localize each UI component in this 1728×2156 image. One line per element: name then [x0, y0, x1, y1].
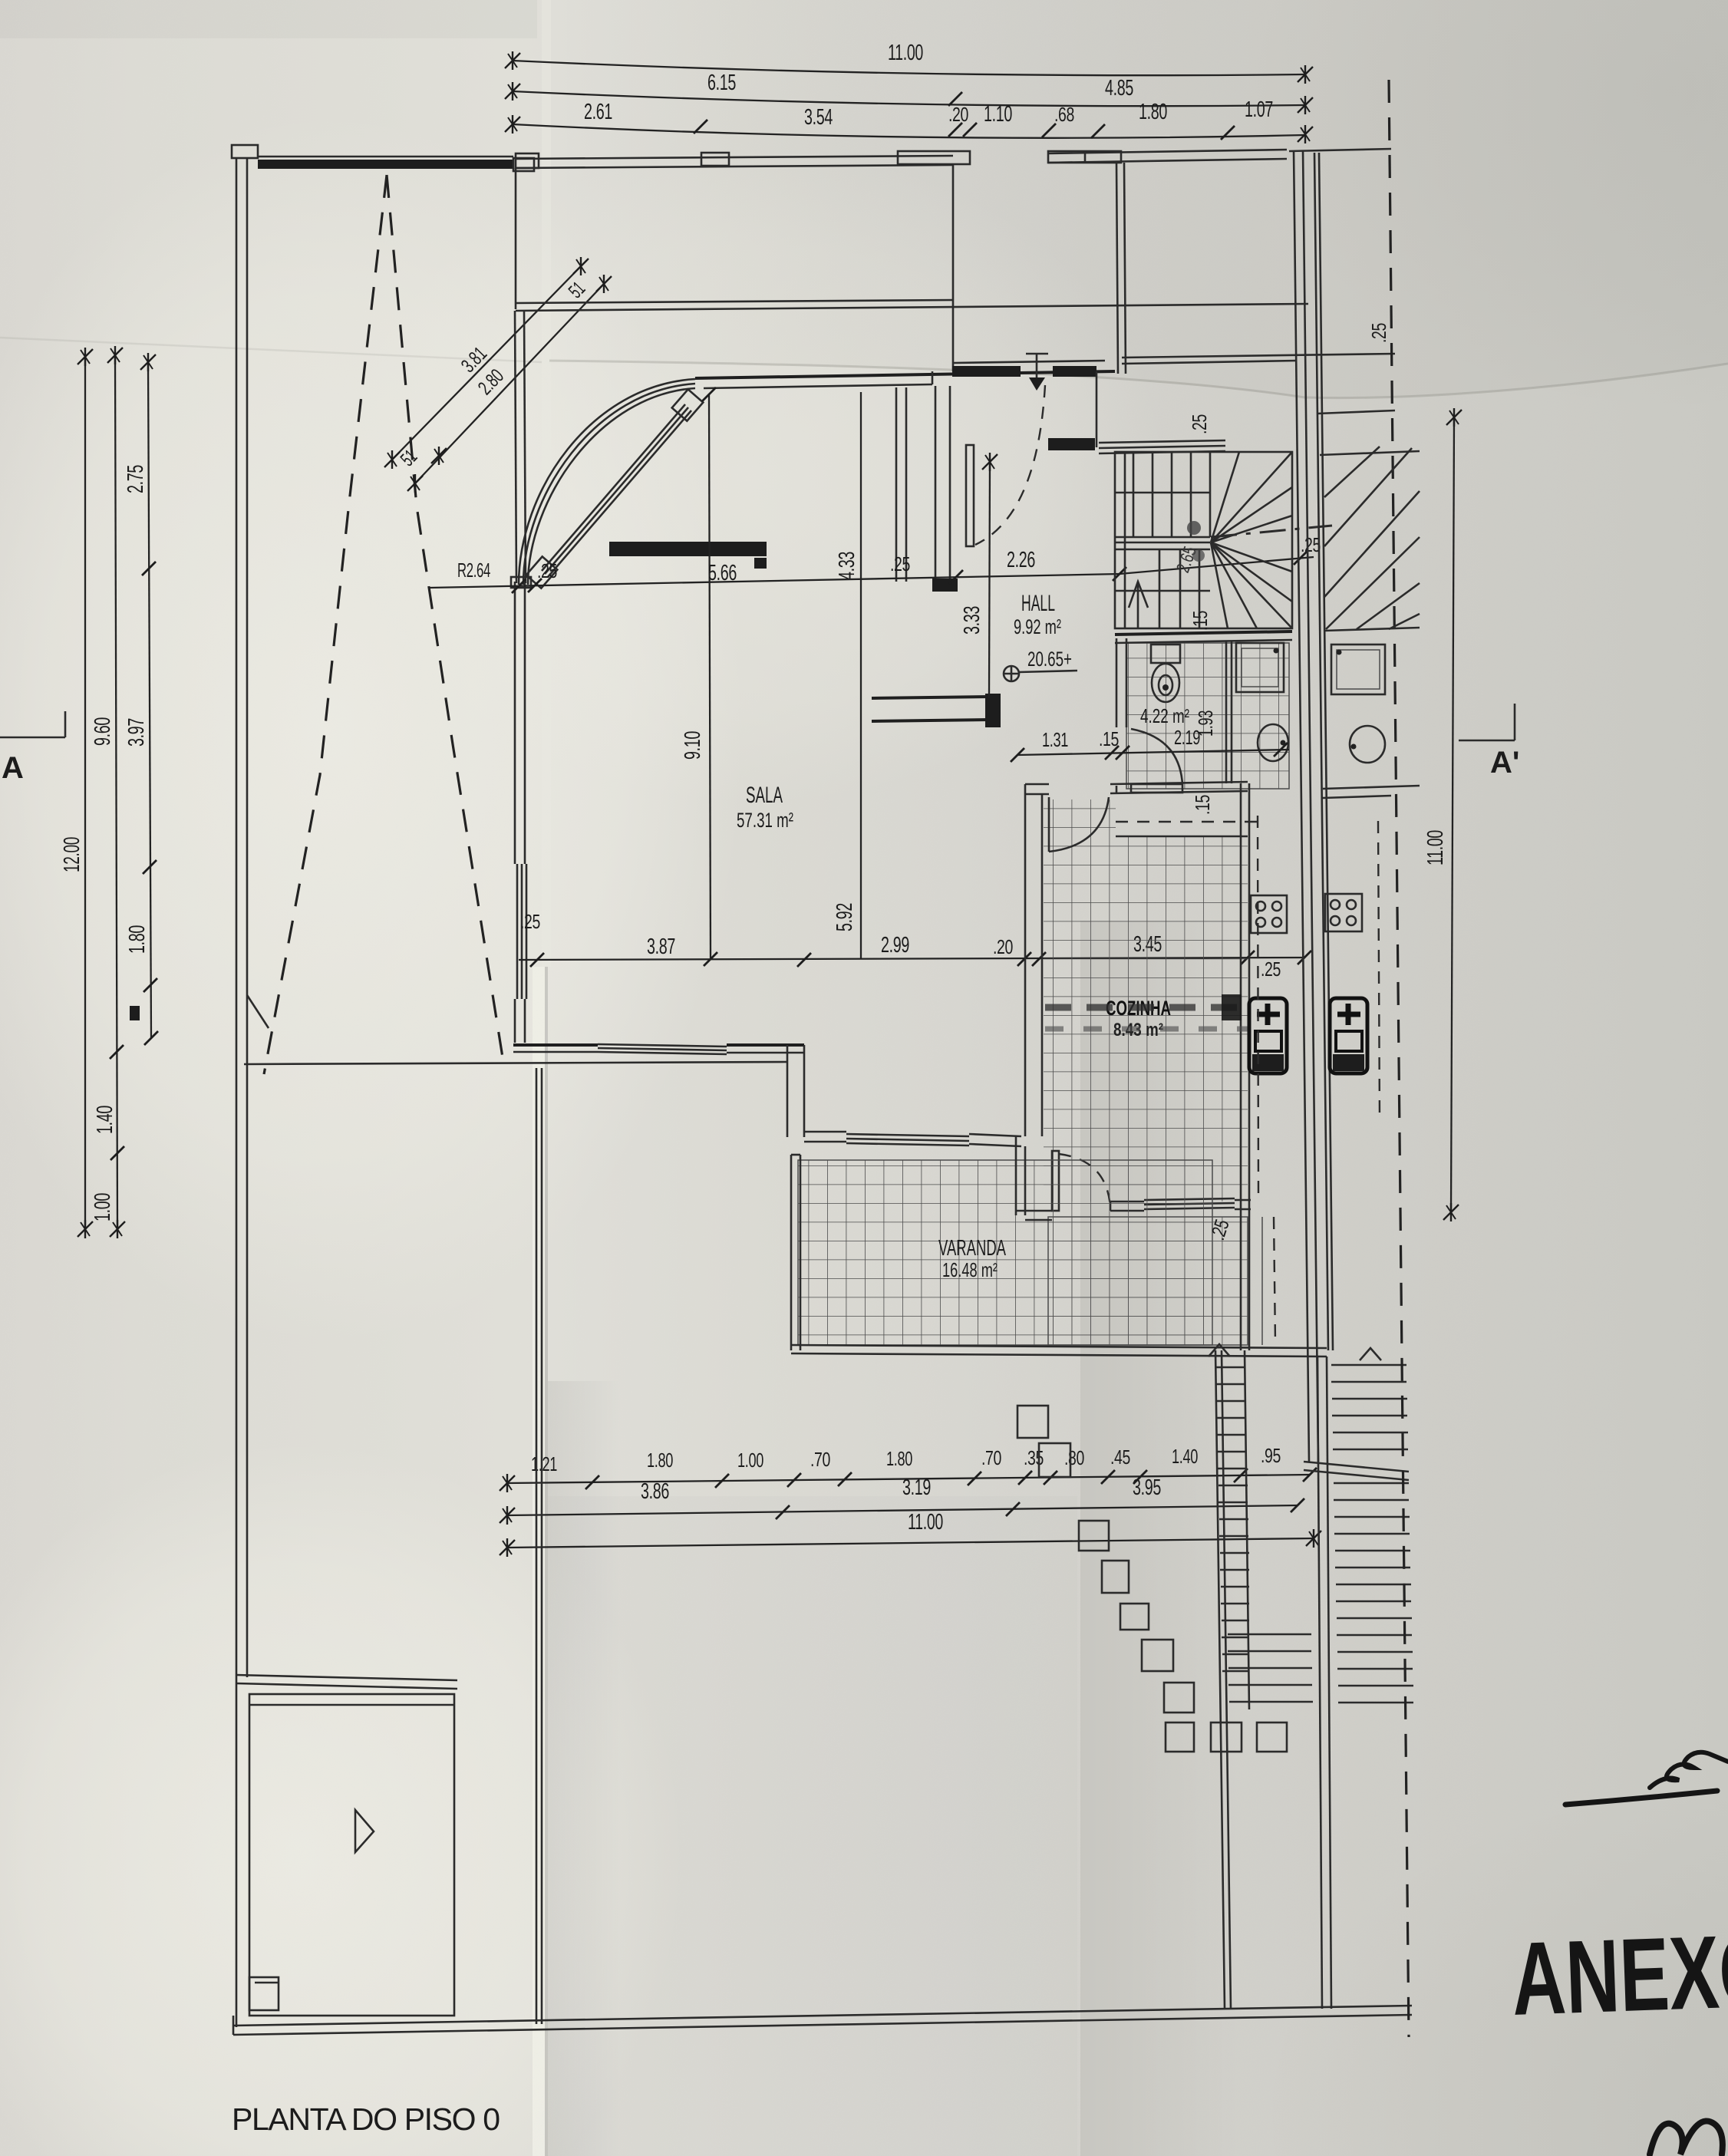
- svg-text:6.15: 6.15: [707, 71, 736, 95]
- svg-text:.15: .15: [1191, 795, 1214, 815]
- svg-text:1.00: 1.00: [737, 1449, 763, 1472]
- svg-text:.25: .25: [1188, 414, 1211, 434]
- svg-text:2.26: 2.26: [1007, 548, 1035, 572]
- svg-text:SALA: SALA: [746, 783, 783, 808]
- svg-text:12.00: 12.00: [60, 837, 84, 872]
- svg-text:.70: .70: [981, 1446, 1001, 1469]
- svg-text:16.48 m²: 16.48 m²: [942, 1258, 998, 1281]
- svg-text:9.60: 9.60: [91, 717, 115, 746]
- svg-text:9.10: 9.10: [681, 731, 705, 760]
- svg-text:.45: .45: [1110, 1446, 1130, 1469]
- svg-text:5.92: 5.92: [833, 903, 857, 931]
- svg-text:3.33: 3.33: [960, 606, 984, 635]
- svg-text:ANEXO: ANEXO: [1510, 1912, 1728, 2036]
- svg-text:1.80: 1.80: [1139, 100, 1167, 124]
- svg-text:1.80: 1.80: [886, 1447, 912, 1470]
- svg-text:.25: .25: [1367, 323, 1390, 343]
- svg-text:1.80: 1.80: [647, 1449, 673, 1472]
- svg-text:.20: .20: [948, 103, 968, 126]
- svg-text:3.54: 3.54: [804, 105, 833, 130]
- svg-text:.68: .68: [1054, 103, 1074, 126]
- svg-text:.25: .25: [890, 552, 910, 575]
- svg-text:11.00: 11.00: [908, 1510, 943, 1535]
- svg-text:.20: .20: [993, 935, 1013, 958]
- svg-text:11.00: 11.00: [888, 41, 923, 65]
- svg-text:VARANDA: VARANDA: [938, 1236, 1006, 1261]
- svg-text:.15: .15: [1099, 727, 1119, 750]
- svg-text:3.87: 3.87: [647, 935, 675, 959]
- svg-text:PLANTA DO PISO 0: PLANTA DO PISO 0: [232, 2102, 500, 2137]
- svg-text:4.85: 4.85: [1105, 76, 1133, 101]
- svg-text:9.92 m²: 9.92 m²: [1014, 615, 1061, 638]
- svg-text:2.75: 2.75: [124, 465, 148, 493]
- svg-text:3.97: 3.97: [124, 718, 149, 747]
- svg-text:.25: .25: [1261, 958, 1281, 981]
- svg-text:4.22 m²: 4.22 m²: [1140, 704, 1189, 727]
- svg-text:R2.64: R2.64: [457, 559, 490, 582]
- svg-text:.95: .95: [1261, 1444, 1281, 1467]
- svg-text:20.65+: 20.65+: [1027, 648, 1072, 671]
- svg-text:.25: .25: [520, 910, 540, 933]
- svg-text:5.66: 5.66: [708, 561, 737, 585]
- svg-text:1.31: 1.31: [1042, 728, 1068, 751]
- svg-text:.25: .25: [537, 559, 557, 582]
- svg-text:.70: .70: [810, 1448, 830, 1471]
- svg-text:A: A: [2, 751, 24, 785]
- svg-text:A': A': [1490, 746, 1519, 780]
- svg-text:HALL: HALL: [1021, 591, 1055, 616]
- svg-text:.25: .25: [1301, 533, 1321, 556]
- svg-text:1.10: 1.10: [984, 102, 1012, 127]
- svg-text:4.33: 4.33: [835, 552, 859, 580]
- svg-text:.80: .80: [1064, 1446, 1084, 1469]
- svg-text:1.07: 1.07: [1245, 97, 1273, 122]
- svg-text:.35: .35: [1024, 1446, 1044, 1469]
- svg-text:1.40: 1.40: [1172, 1445, 1198, 1468]
- svg-text:1.40: 1.40: [93, 1106, 117, 1134]
- svg-text:3.19: 3.19: [902, 1475, 931, 1500]
- svg-text:11.00: 11.00: [1423, 830, 1448, 865]
- svg-text:3.95: 3.95: [1133, 1475, 1161, 1500]
- svg-text:1.80: 1.80: [125, 925, 150, 954]
- svg-text:2.99: 2.99: [881, 933, 909, 958]
- svg-text:1.00: 1.00: [91, 1193, 115, 1221]
- svg-text:57.31 m²: 57.31 m²: [737, 809, 793, 832]
- svg-text:2.19: 2.19: [1174, 726, 1200, 749]
- svg-text:3.86: 3.86: [641, 1479, 669, 1504]
- svg-text:.15: .15: [1189, 611, 1212, 631]
- svg-text:1.21: 1.21: [531, 1452, 557, 1475]
- svg-text:2.61: 2.61: [584, 100, 612, 124]
